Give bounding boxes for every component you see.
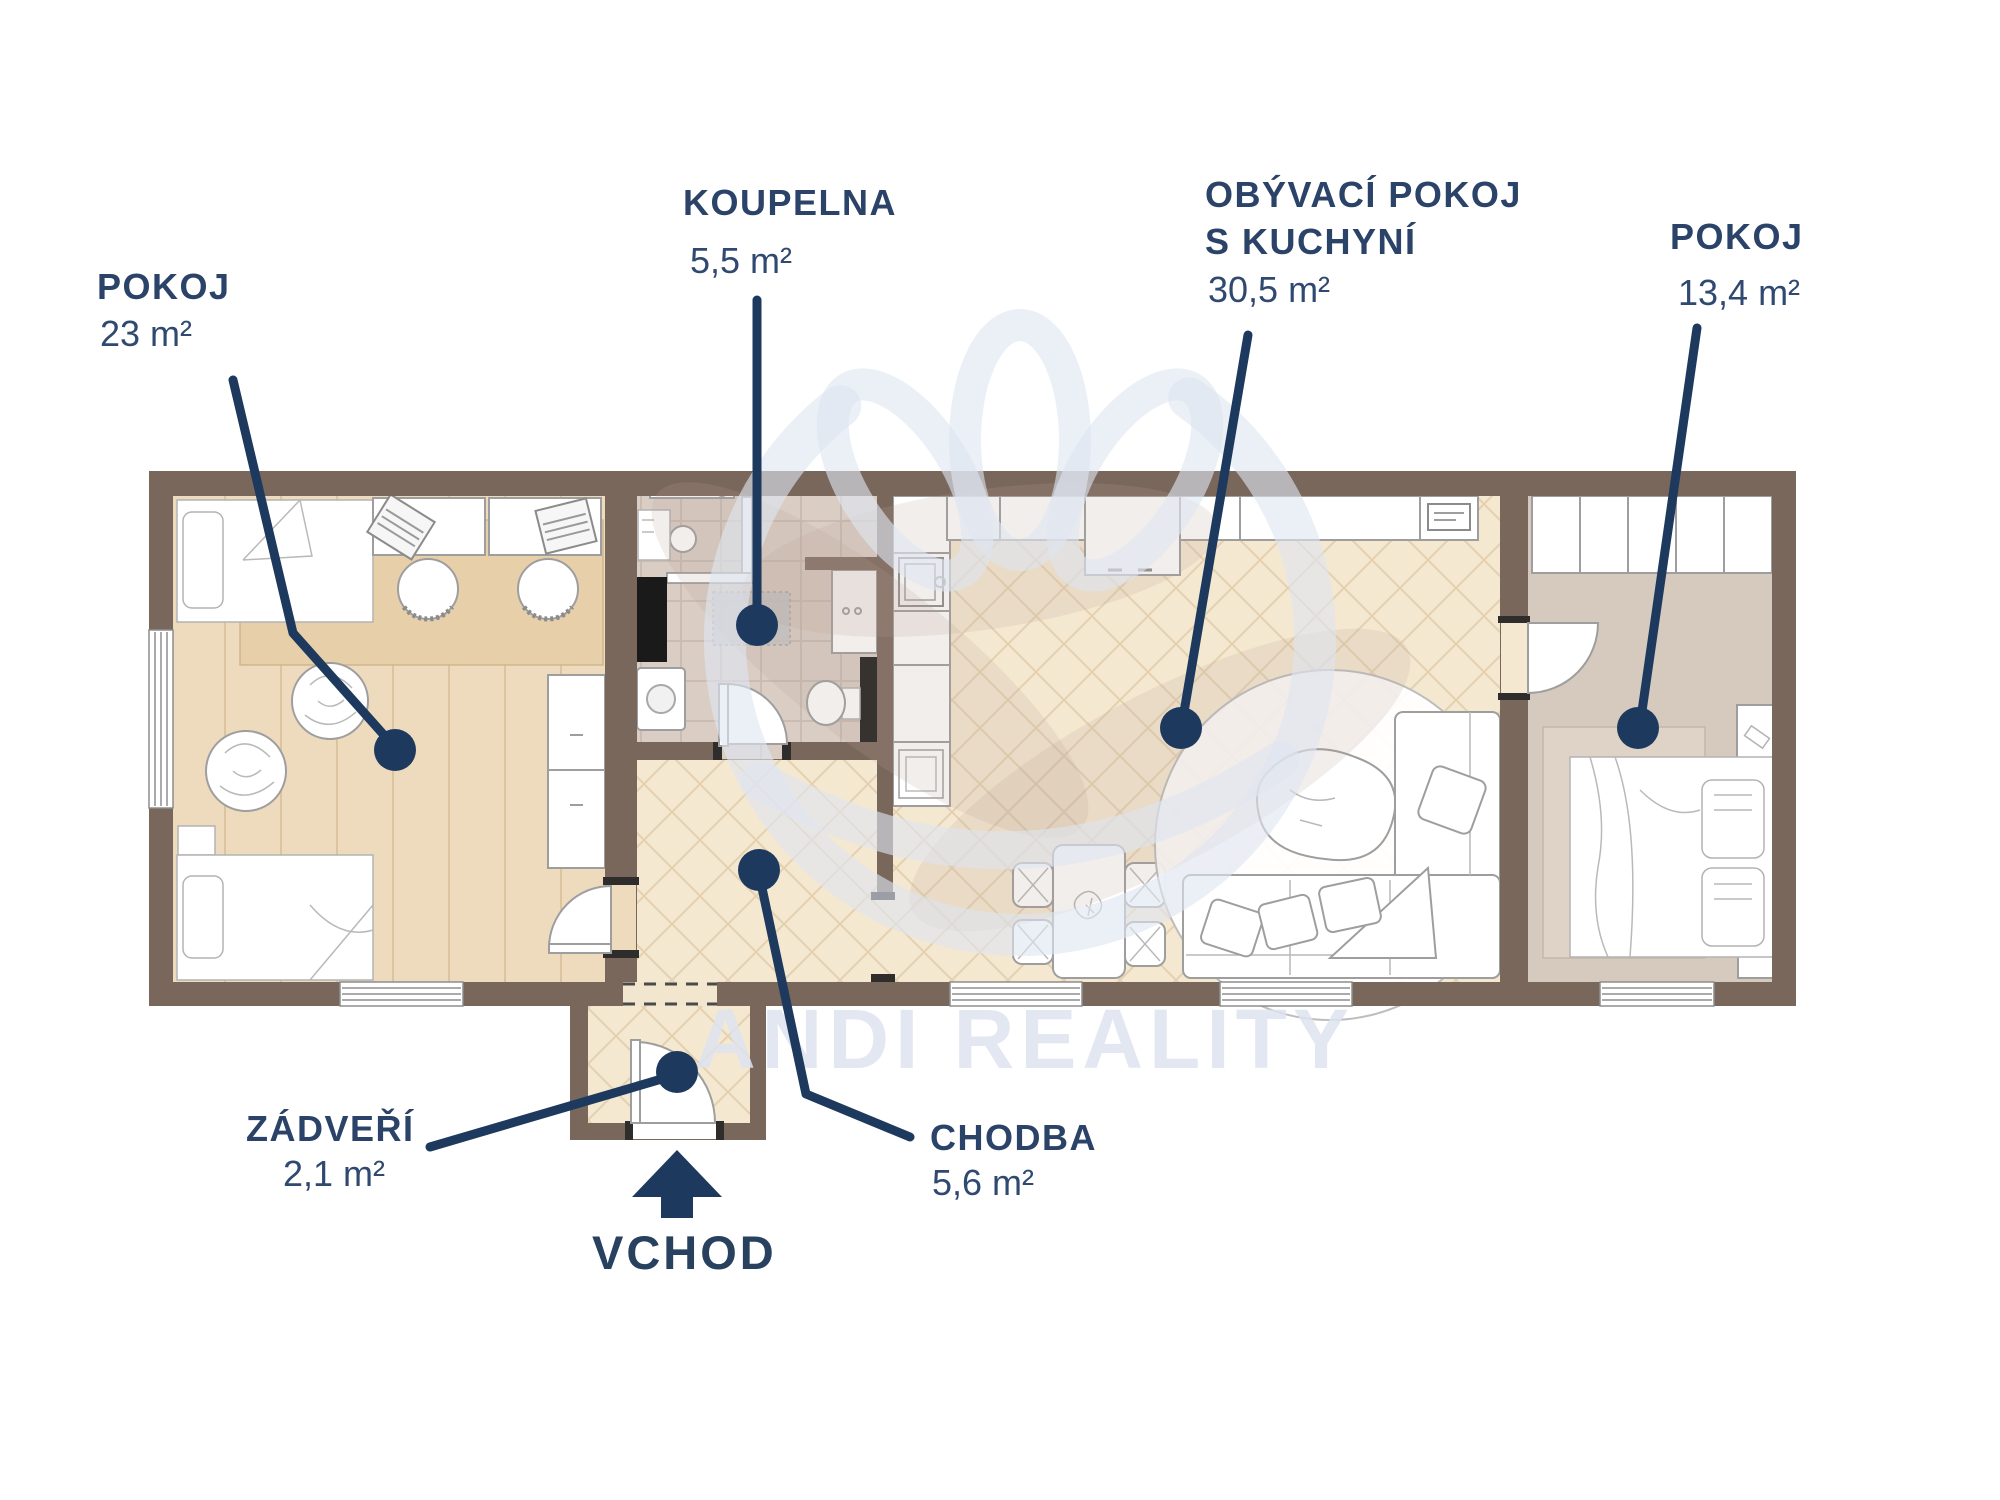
washing-machine — [637, 668, 685, 730]
wardrobe-pokoj-right — [1532, 496, 1772, 573]
room-area-koupelna: 5,5 m² — [690, 240, 792, 282]
wall-living-pokoj-right — [1500, 496, 1528, 982]
entrance-label: VCHOD — [592, 1225, 777, 1280]
room-label-zadveri: ZÁDVEŘÍ — [246, 1108, 415, 1150]
entrance-arrow-icon — [632, 1150, 722, 1218]
dot-zadveri — [656, 1051, 698, 1093]
window-south-pokoj-right — [1600, 982, 1714, 1006]
room-area-obyvaci: 30,5 m² — [1208, 269, 1330, 311]
desk-1 — [367, 495, 485, 560]
nightstand-right-1 — [1737, 705, 1775, 763]
room-area-zadveri: 2,1 m² — [283, 1153, 385, 1195]
floorplan-page: ANDI REALITY POKOJ 23 m² KOUPELNA 5,5 m²… — [0, 0, 2000, 1500]
dot-chodba — [738, 849, 780, 891]
dot-pokoj-right — [1617, 707, 1659, 749]
desk-chair-2 — [518, 559, 578, 619]
dot-koupelna — [736, 604, 778, 646]
room-label-koupelna: KOUPELNA — [683, 182, 897, 224]
wall-zadveri-west — [570, 1000, 588, 1140]
bed-double — [1570, 757, 1775, 957]
window-south-pokoj-left — [340, 982, 463, 1006]
room-area-chodba: 5,6 m² — [932, 1162, 1034, 1204]
bathroom-black-cabinet — [635, 577, 667, 662]
armchair-round-2 — [206, 731, 286, 811]
opening-pokoj-right-door — [1501, 623, 1527, 693]
desk-2 — [489, 498, 601, 555]
desk-chair-1 — [398, 559, 458, 619]
room-label-obyvaci: OBÝVACÍ POKOJ — [1205, 174, 1522, 216]
room-area-pokoj-right: 13,4 m² — [1678, 272, 1800, 314]
bed-single-bottom — [177, 855, 373, 980]
room-label-pokoj-left: POKOJ — [97, 266, 231, 308]
room-area-pokoj-left: 23 m² — [100, 313, 192, 355]
wardrobe-pokoj-left — [548, 675, 605, 868]
room-label-chodba: CHODBA — [930, 1117, 1097, 1159]
dot-obyvaci — [1160, 707, 1202, 749]
nightstand-pokoj-left — [178, 826, 215, 855]
wall-east — [1772, 471, 1796, 1006]
window-west — [149, 630, 173, 808]
opening-entrance-door — [633, 1124, 717, 1139]
room-label-pokoj-right: POKOJ — [1670, 216, 1804, 258]
dot-pokoj-left — [374, 729, 416, 771]
room-label-obyvaci-2: S KUCHYNÍ — [1205, 221, 1417, 263]
